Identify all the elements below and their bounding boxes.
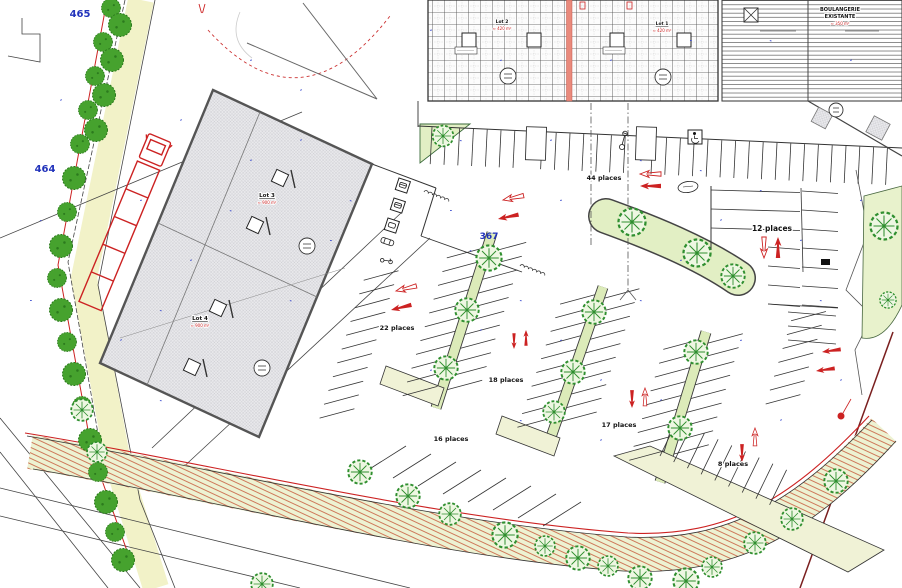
survey-marker — [829, 103, 843, 117]
hedge-icon — [71, 135, 90, 154]
parcel-label-464: 464 — [35, 164, 56, 175]
lot2-note: ≈ 420 m² — [492, 26, 511, 31]
tree-icon — [619, 209, 646, 236]
east-green-strip — [862, 186, 902, 338]
blue-dimension-tick — [30, 300, 32, 301]
tree-icon — [561, 360, 584, 383]
hedge-icon — [58, 203, 77, 222]
tree-icon — [434, 356, 457, 379]
hedge-icon — [79, 101, 98, 120]
lot1-label: Lot 1 — [656, 21, 669, 27]
tree-icon — [348, 460, 371, 483]
tree-icon — [433, 126, 454, 147]
wheelchair-icon — [688, 130, 702, 144]
lot4-label: Lot 4 — [192, 316, 208, 322]
tree-icon — [880, 292, 896, 308]
hedge-icon — [48, 269, 67, 288]
tree-icon — [781, 508, 803, 530]
bakery-label-line2: EXISTANTE — [825, 14, 856, 20]
hedge-icon — [93, 84, 116, 107]
bakery-note: ≈ 350 m² — [830, 21, 849, 26]
parking-count-18: 18 places — [489, 376, 524, 384]
rooflight — [677, 33, 691, 47]
blue-dimension-tick — [330, 240, 332, 241]
parking-count-44: 44 places — [587, 174, 622, 182]
tree-icon — [71, 399, 93, 421]
utility-marker — [821, 259, 830, 265]
lot1-note: ≈ 420 m² — [652, 28, 671, 33]
divider-stripe — [567, 0, 573, 101]
parking-count-17: 17 places — [602, 421, 637, 429]
parking-count-16: 16 places — [434, 435, 469, 443]
tree-icon — [566, 546, 589, 569]
parcel-label-465: 465 — [70, 9, 91, 20]
tree-icon — [396, 484, 419, 507]
tree-icon — [744, 532, 766, 554]
tree-icon — [492, 522, 517, 547]
survey-marker — [655, 69, 671, 85]
parking-count-22: 22 places — [380, 324, 415, 332]
hedge-icon — [85, 119, 108, 142]
tree-icon — [87, 442, 107, 462]
tree-icon — [824, 469, 847, 492]
lot2-label: Lot 2 — [496, 19, 509, 25]
rooflight — [527, 33, 541, 47]
tree-icon — [721, 264, 744, 287]
hedge-icon — [58, 333, 77, 352]
bakery-label-line1: BOULANGERIE — [820, 7, 861, 13]
tree-icon — [543, 401, 565, 423]
rooflight — [610, 33, 624, 47]
tree-icon — [598, 556, 618, 576]
hedge-icon — [106, 523, 125, 542]
site-plan-canvas: 465 464 367 Lot 3 ≈ 900 m² Lot 4 ≈ 900 m… — [0, 0, 902, 588]
blue-dimension-tick — [690, 40, 692, 41]
tree-icon — [439, 503, 461, 525]
sidewalk-notch — [525, 127, 546, 161]
hedge-icon — [112, 549, 135, 572]
hedge-icon — [50, 299, 73, 322]
red-point-marker — [838, 413, 845, 420]
blue-dimension-tick — [450, 210, 452, 211]
tree-icon — [684, 240, 711, 267]
hedge-icon — [63, 363, 86, 386]
survey-marker — [299, 238, 315, 254]
equipment-label-box — [603, 47, 625, 54]
survey-marker — [500, 68, 516, 84]
survey-marker — [254, 360, 270, 376]
tree-icon — [476, 245, 501, 270]
tree-icon — [702, 557, 722, 577]
hedge-icon — [109, 14, 132, 37]
tree-icon — [535, 536, 555, 556]
lot3-label: Lot 3 — [259, 193, 275, 199]
rooflight — [462, 33, 476, 47]
lot4-note: ≈ 900 m² — [190, 323, 209, 328]
hedge-icon — [86, 67, 105, 86]
site-plan-drawing: 465 464 367 Lot 3 ≈ 900 m² Lot 4 ≈ 900 m… — [0, 0, 902, 588]
hedge-icon — [95, 491, 118, 514]
parcel-label-367: 367 — [480, 232, 499, 242]
parking-count-12: 12 places — [752, 224, 793, 233]
lot3-note: ≈ 900 m² — [257, 200, 276, 205]
tree-icon — [455, 298, 478, 321]
tree-icon — [582, 300, 605, 323]
tree-icon — [871, 213, 898, 240]
tree-icon — [668, 416, 691, 439]
sidewalk-notch — [635, 127, 656, 161]
hedge-icon — [89, 463, 108, 482]
hedge-icon — [101, 49, 124, 72]
equipment-label-box — [455, 47, 477, 54]
tree-icon — [684, 340, 707, 363]
building-lot1-lot2 — [428, 0, 718, 101]
parking-count-8: 8 places — [718, 460, 748, 468]
hedge-icon — [63, 167, 86, 190]
hedge-icon — [50, 235, 73, 258]
